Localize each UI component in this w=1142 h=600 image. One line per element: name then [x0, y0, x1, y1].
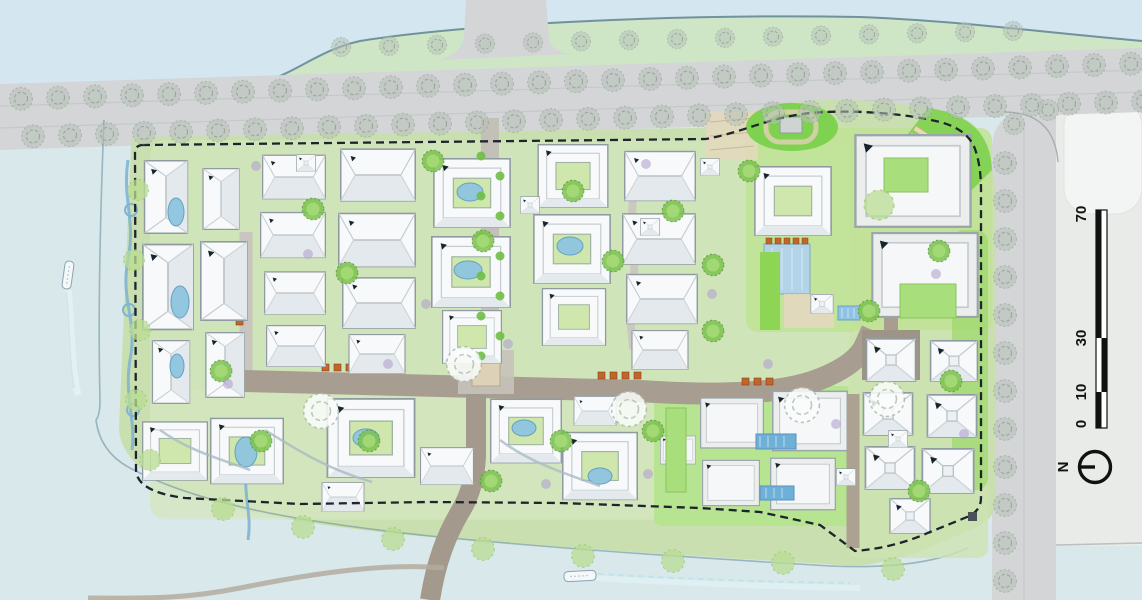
scale-bar-segment: [1102, 338, 1108, 392]
east-corner-plot: [1064, 100, 1142, 214]
building: [201, 242, 247, 320]
tree: [210, 360, 232, 382]
shrub: [643, 469, 653, 479]
building: [203, 169, 239, 230]
bank-tree: [472, 538, 495, 561]
shrub: [383, 359, 393, 369]
tree: [302, 198, 324, 220]
amenity-building: [771, 458, 836, 509]
building: [627, 275, 698, 324]
tree: [358, 430, 380, 452]
shrub: [223, 379, 233, 389]
pavilion: [296, 155, 315, 172]
bank-tree: [124, 250, 145, 271]
small-pool: [838, 306, 860, 320]
amenity-building: [703, 460, 760, 505]
building: [625, 152, 696, 201]
planter: [610, 372, 617, 379]
pond: [557, 237, 583, 255]
pond: [170, 354, 184, 378]
planter: [334, 364, 341, 371]
grand-pavilion: [755, 167, 831, 235]
courtyard-house: [563, 433, 637, 500]
courtyard-house: [542, 289, 605, 346]
tree: [250, 430, 272, 452]
shrub: [959, 429, 969, 439]
green-roof: [900, 284, 956, 318]
building: [267, 326, 326, 367]
tree: [662, 200, 684, 222]
planter: [634, 372, 641, 379]
feature-tree: [612, 392, 647, 427]
bank-tree: [662, 550, 685, 573]
feature-tree: [304, 394, 339, 429]
site-plan-page: 70 30 10 0 N: [0, 0, 1142, 600]
feature-tree: [785, 388, 820, 423]
pool-pavilion: [811, 294, 833, 313]
boundary-marker: [968, 512, 977, 521]
shrub: [541, 479, 551, 489]
scale-bar-segment: [1096, 210, 1102, 338]
scale-label-10: 10: [1073, 384, 1090, 401]
shrub: [503, 339, 513, 349]
scale-bar-segment: [1096, 392, 1102, 428]
tree: [480, 470, 502, 492]
building: [632, 331, 688, 370]
southeast-water: [1056, 546, 1142, 600]
building: [421, 448, 474, 485]
tree: [336, 262, 358, 284]
buildings-center-courtyard: [432, 145, 697, 370]
planter: [742, 378, 749, 385]
building: [349, 335, 405, 374]
building: [322, 482, 364, 511]
tree: [738, 160, 760, 182]
villa: [866, 339, 915, 381]
building: [343, 278, 416, 328]
boat-icon: [564, 570, 596, 582]
north-label: N: [1055, 462, 1072, 473]
pavilion: [888, 431, 907, 448]
shrub: [421, 299, 431, 309]
tree: [422, 150, 444, 172]
bank-tree: [572, 545, 595, 568]
bank-tree: [130, 320, 151, 341]
villa: [865, 447, 914, 489]
bank-tree: [140, 450, 161, 471]
amenity-building: [701, 398, 764, 448]
tree: [940, 370, 962, 392]
shrub: [831, 419, 841, 429]
pond: [512, 420, 536, 436]
tree: [702, 254, 724, 276]
building: [341, 149, 415, 201]
shrub: [251, 161, 261, 171]
pavilion: [520, 197, 539, 214]
shrub: [303, 249, 313, 259]
street-tree: [1004, 114, 1025, 135]
building: [265, 272, 326, 314]
shrub: [641, 159, 651, 169]
pond: [171, 286, 189, 318]
bank-tree: [126, 390, 147, 411]
bank-tree: [128, 180, 149, 201]
bank-tree: [772, 552, 795, 575]
site-plan-canvas: 70 30 10 0 N: [0, 0, 1142, 600]
tree: [908, 480, 930, 502]
lap-pool: [760, 486, 794, 500]
building: [574, 396, 616, 425]
pavilion: [640, 219, 659, 236]
street-tree: [1038, 100, 1059, 121]
tree: [702, 320, 724, 342]
bank-tree: [382, 528, 405, 551]
building: [143, 245, 193, 330]
pool-lawn-strip: [760, 252, 780, 330]
pavilion: [836, 469, 855, 486]
planter: [754, 378, 761, 385]
bank-tree: [292, 516, 315, 539]
shrub: [763, 359, 773, 369]
courtyard-tree: [864, 190, 894, 220]
feature-tree: [447, 347, 482, 382]
tree: [550, 430, 572, 452]
scale-label-0: 0: [1073, 420, 1090, 428]
pond: [168, 198, 184, 226]
green-roof: [666, 408, 686, 492]
bank-tree: [212, 498, 235, 521]
building: [339, 213, 415, 266]
tree: [928, 240, 950, 262]
scale-label-70: 70: [1073, 206, 1090, 223]
green-roof: [884, 158, 928, 192]
villa: [890, 499, 930, 534]
bank-tree: [882, 558, 905, 581]
knoll-pavilion: [780, 117, 802, 133]
villa: [927, 395, 976, 437]
pond: [588, 468, 612, 484]
planter: [766, 378, 773, 385]
tree: [858, 300, 880, 322]
pavilion: [700, 159, 719, 176]
villa: [922, 449, 973, 493]
tree: [472, 230, 494, 252]
planter: [598, 372, 605, 379]
feature-tree: [870, 382, 905, 417]
tree: [602, 250, 624, 272]
planter: [622, 372, 629, 379]
tree: [562, 180, 584, 202]
scale-label-30: 30: [1073, 330, 1090, 347]
shrub: [707, 289, 717, 299]
tree: [642, 420, 664, 442]
shrub: [931, 269, 941, 279]
